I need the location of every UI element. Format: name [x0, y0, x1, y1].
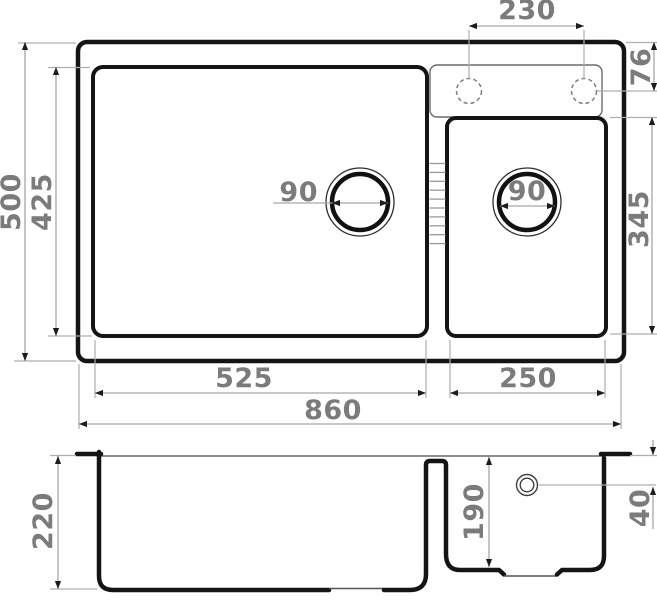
dim-label-345: 345 [624, 190, 655, 248]
left-bowl-profile [99, 452, 329, 590]
dim-label-76: 76 [626, 48, 657, 87]
top-view: 90 90 230 76 500 [0, 0, 657, 429]
small-drain-diameter-label: 90 [508, 176, 547, 207]
sink-technical-drawing: 90 90 230 76 500 [0, 0, 657, 600]
dim-label-525: 525 [215, 363, 273, 394]
dim-label-860: 860 [304, 395, 362, 426]
dim-label-40: 40 [625, 489, 656, 528]
dim-label-425: 425 [27, 173, 58, 231]
dim-bowl-height: 220 [28, 456, 97, 590]
dim-label-190: 190 [459, 483, 490, 541]
main-drain-diameter-label: 90 [279, 177, 318, 208]
overflow-inner-circle [520, 478, 534, 492]
dim-label-500: 500 [0, 173, 27, 231]
technical-drawing-svg: 90 90 230 76 500 [0, 0, 657, 600]
dim-label-220: 220 [28, 492, 59, 550]
section-view: 220 190 40 [28, 440, 657, 590]
right-bowl-profile [557, 458, 604, 575]
dim-label-230: 230 [498, 0, 556, 26]
dim-small-bowl-inner-depth: 190 [459, 457, 490, 567]
dim-label-250: 250 [499, 363, 557, 394]
